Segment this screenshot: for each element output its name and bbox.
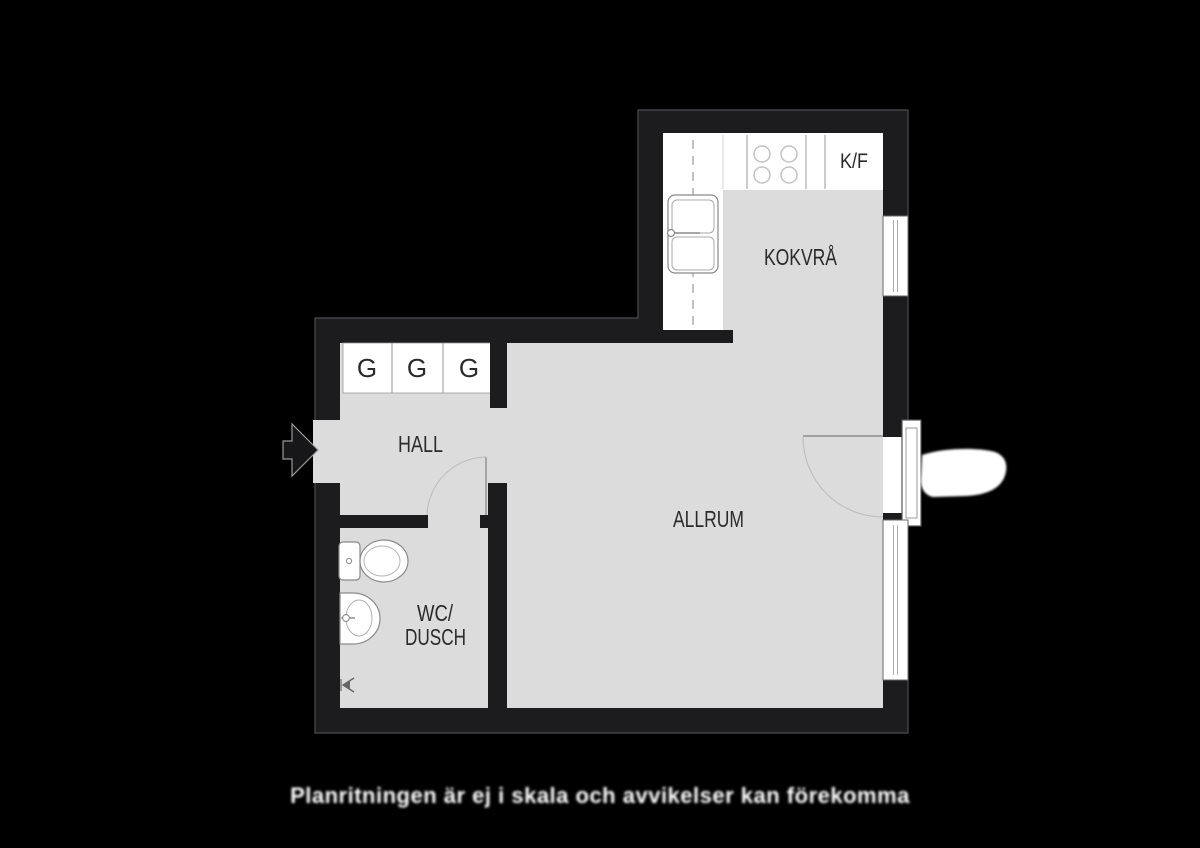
kitchen-window-icon xyxy=(883,216,908,296)
kokvra-label: KOKVRÅ xyxy=(764,243,837,270)
floor-plan-canvas: K/F G G G xyxy=(0,0,1200,848)
wc-dusch-label-line2: DUSCH xyxy=(405,624,466,650)
interior-wall xyxy=(490,340,507,408)
wardrobe-label: G xyxy=(357,353,377,383)
wardrobe-label: G xyxy=(407,353,427,383)
balcony-door-frame xyxy=(902,420,921,526)
interior-wall xyxy=(663,330,733,343)
floor-plan-page: K/F G G G xyxy=(0,0,1200,848)
entry-door-opening xyxy=(313,420,342,483)
wc-dusch-label-line1: WC/ xyxy=(417,600,453,626)
allrum-label: ALLRUM xyxy=(673,506,744,532)
interior-wall xyxy=(480,515,489,528)
caption-text: Planritningen är ej i skala och avvikels… xyxy=(0,783,1200,809)
wardrobe-row: G G G xyxy=(343,343,495,393)
interior-wall xyxy=(340,515,428,528)
toilet-icon xyxy=(339,540,408,582)
interior-wall xyxy=(488,483,507,710)
wardrobe-label: G xyxy=(459,353,479,383)
hall-label: HALL xyxy=(398,431,443,457)
fridge-freezer-label: K/F xyxy=(840,150,868,173)
kitchen-sink-icon xyxy=(668,195,719,273)
allrum-window-icon xyxy=(883,520,908,680)
